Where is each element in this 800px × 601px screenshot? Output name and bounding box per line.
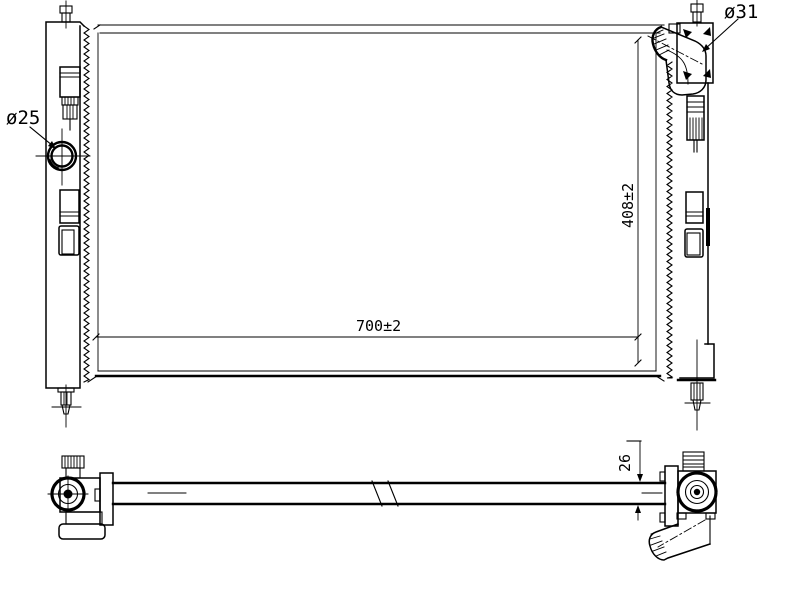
- inlet-diameter-label: ø31: [724, 1, 758, 23]
- left-cap-ribs: [65, 456, 80, 468]
- right-bottom-pin: [685, 340, 710, 430]
- right-flange: [665, 466, 678, 526]
- inlet-pipe-body: [661, 27, 706, 95]
- bottom-outlet-pipe: [649, 513, 710, 560]
- outlet-port: [36, 129, 90, 185]
- inlet-diameter-callout: ø31: [702, 1, 758, 52]
- right-cap-ribs: [683, 456, 704, 467]
- left-foot-block: [59, 524, 105, 539]
- left-tank-gasket-serration: [84, 26, 89, 382]
- right-tank: [648, 0, 715, 430]
- outlet-diameter-label: ø25: [6, 107, 40, 129]
- core-depth-label: 26: [616, 454, 634, 472]
- left-mid-bracket-lower: [59, 226, 79, 255]
- left-upper-bracket: [60, 67, 80, 130]
- core-height-label: 408±2: [619, 183, 637, 228]
- right-ribbed-cap: [683, 452, 704, 471]
- right-tank-dark-rib: [706, 208, 710, 246]
- left-tank: [36, 1, 90, 427]
- depth-dim-arrow-down: [637, 474, 643, 482]
- drawing-svg: 700±2 408±2 ø25 ø31: [0, 0, 800, 601]
- bottom-view: 26: [48, 441, 716, 560]
- right-upper-bracket: [687, 96, 704, 152]
- left-mid-bracket-upper: [60, 190, 79, 223]
- left-drain-pin: [52, 385, 81, 427]
- right-mid-bracket-lower: [685, 229, 703, 257]
- left-quick-connector: [48, 476, 88, 512]
- bottom-core: [113, 481, 665, 506]
- right-mid-bracket-upper: [686, 192, 703, 223]
- radiator-technical-drawing: 700±2 408±2 ø25 ø31: [0, 0, 800, 601]
- break-mark-2: [388, 481, 398, 506]
- right-filler-neck: [678, 473, 716, 511]
- front-view-dimensions: 700±2 408±2 ø25 ø31: [6, 1, 758, 366]
- break-mark-1: [372, 481, 382, 506]
- right-top-pin: [691, 0, 703, 26]
- core-width-label: 700±2: [356, 317, 401, 335]
- bottom-left-fitting: [48, 456, 113, 539]
- filler-neck-hub: [694, 489, 700, 495]
- depth-dimension: 26: [616, 441, 643, 520]
- left-top-mount-pin: [60, 1, 72, 28]
- bottom-right-fitting: [649, 452, 716, 560]
- outlet-diameter-callout: ø25: [6, 107, 56, 149]
- outlet-leader-line: [30, 127, 53, 146]
- left-lower-block: [66, 512, 102, 524]
- core-bottom-left-nick: [88, 376, 97, 382]
- right-tank-gasket-serration: [667, 62, 672, 378]
- right-bottom-bracket: [678, 344, 715, 380]
- core-top-left-nick: [94, 25, 100, 29]
- front-view: 700±2 408±2 ø25 ø31: [6, 0, 758, 430]
